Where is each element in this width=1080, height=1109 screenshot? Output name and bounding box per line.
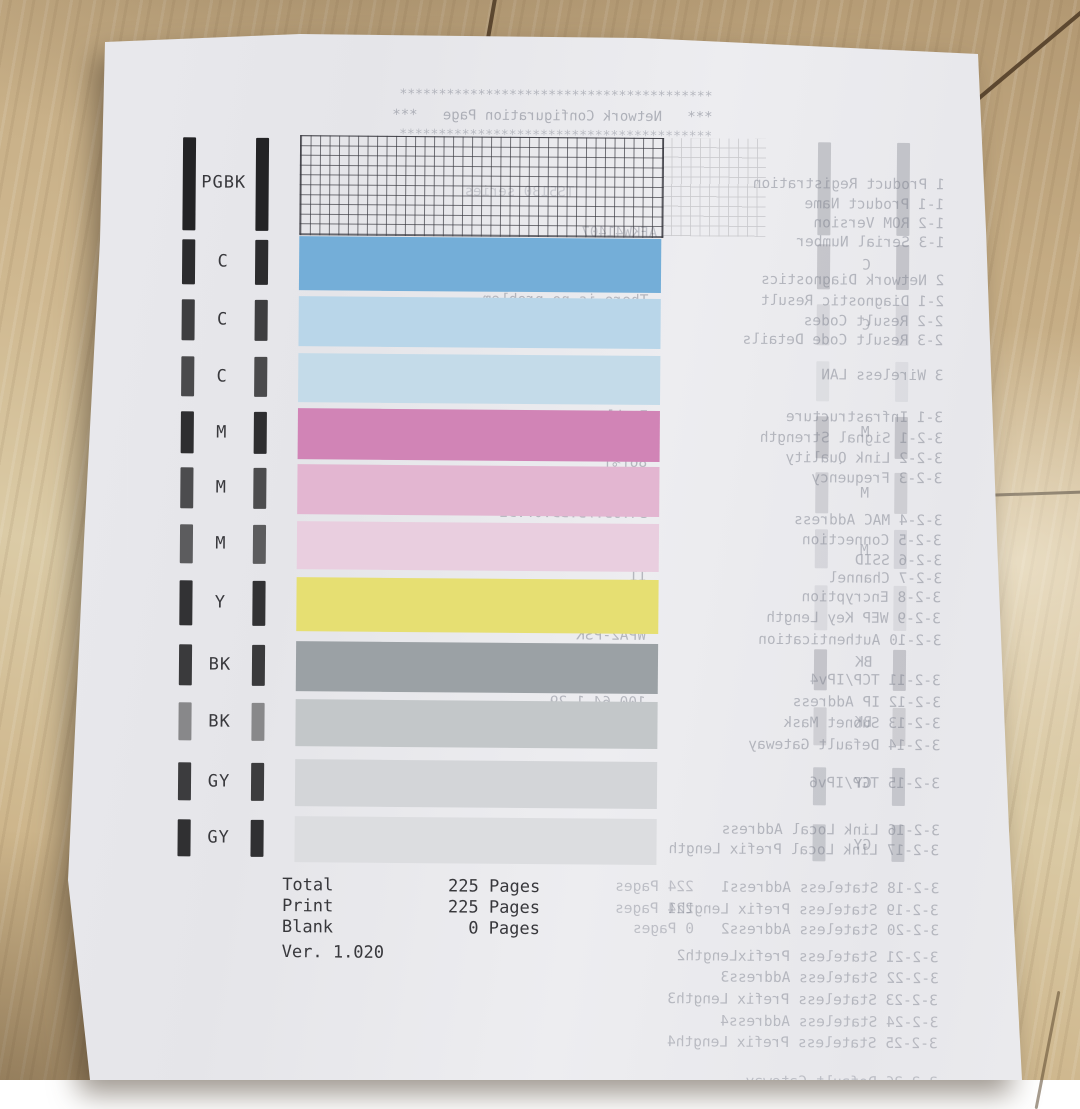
page-count-line: Print225 Pages: [282, 896, 540, 918]
nozzle-row-label-m: M: [175, 533, 267, 554]
nozzle-row-label-c: C: [177, 251, 269, 272]
nozzle-row-label-bk: BK: [173, 711, 265, 732]
nozzle-row-label-y: Y: [174, 592, 266, 613]
nozzle-row-label-m: M: [176, 422, 268, 443]
nozzle-color-bar-c: [298, 353, 660, 405]
nozzle-color-bar-bk: [295, 699, 657, 749]
page-count-value: 0 Pages: [468, 919, 540, 940]
nozzle-row-label-bk: BK: [174, 654, 266, 675]
nozzle-row-label-c: C: [177, 309, 269, 330]
test-print-sheet: ****************************************…: [0, 0, 1080, 1080]
page-count-value: 225 Pages: [448, 876, 540, 897]
nozzle-color-bar-y: [296, 577, 658, 634]
nozzle-color-bar-m: [297, 521, 659, 572]
paper-surface: ****************************************…: [0, 0, 1080, 1080]
page-count-line: Total225 Pages: [282, 875, 540, 897]
firmware-version: Ver. 1.020: [282, 942, 385, 963]
nozzle-color-bar-c: [298, 296, 660, 349]
nozzle-color-bar-c: [299, 236, 661, 293]
nozzle-row-label-c: C: [176, 366, 268, 387]
nozzle-color-bar-m: [298, 408, 660, 462]
pgbk-nozzle-grid: [299, 135, 664, 238]
nozzle-row-label-gy: GY: [173, 771, 265, 792]
page-count-label: Total: [282, 875, 333, 895]
page-count-label: Print: [282, 896, 333, 916]
nozzle-row-label-pgbk: PGBK: [178, 172, 270, 193]
page-count-value: 225 Pages: [448, 897, 540, 918]
print-front: Ver. 1.020 PGBKCCCMMMYBKBKGYGYTotal225 P…: [0, 0, 1080, 1087]
nozzle-color-bar-m: [297, 464, 659, 517]
page-count-label: Blank: [282, 917, 333, 937]
nozzle-color-bar-gy: [295, 759, 657, 809]
nozzle-color-bar-bk: [296, 641, 658, 694]
sheet-content: ****************************************…: [0, 0, 1080, 1087]
page-count-line: Blank0 Pages: [282, 917, 540, 939]
nozzle-row-label-m: M: [175, 477, 267, 498]
nozzle-color-bar-gy: [294, 816, 656, 865]
nozzle-row-label-gy: GY: [173, 827, 265, 848]
photo-printer-test-page: { "scene": { "description": "Canon nozzl…: [0, 0, 1080, 1080]
